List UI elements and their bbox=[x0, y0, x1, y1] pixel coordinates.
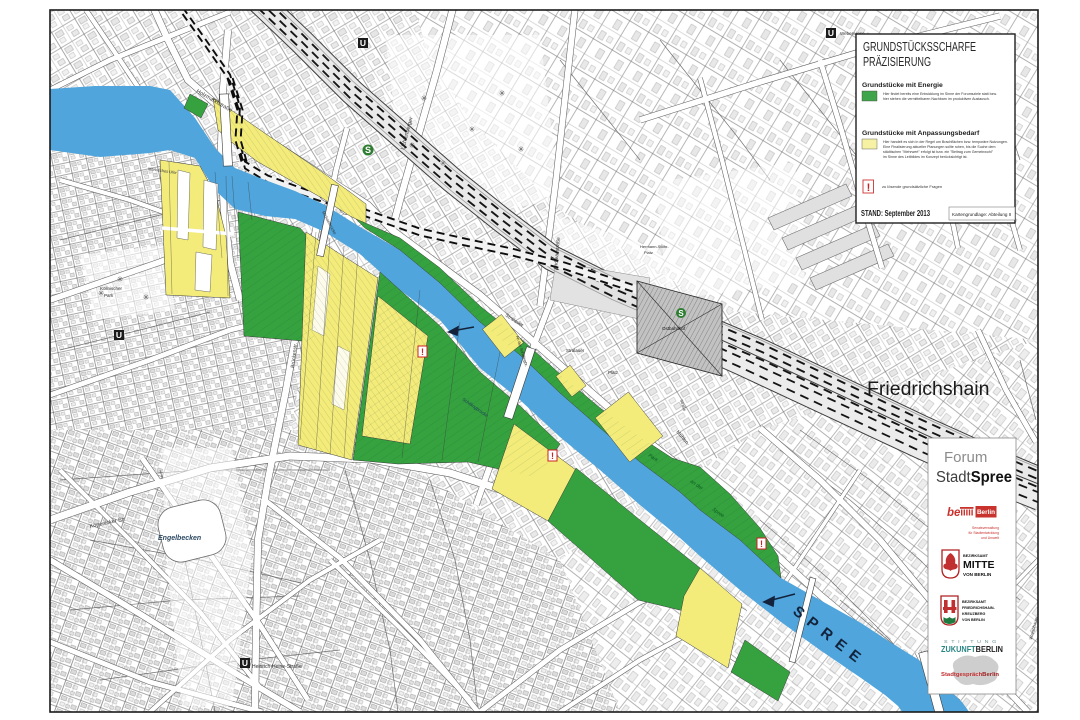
svg-text:Senatsverwaltung: Senatsverwaltung bbox=[972, 526, 999, 530]
svg-text:Platz: Platz bbox=[644, 250, 653, 255]
svg-text:StadtSpree: StadtSpree bbox=[936, 469, 1012, 486]
svg-text:ZUKUNFTBERLIN: ZUKUNFTBERLIN bbox=[941, 644, 1003, 654]
svg-text:✳: ✳ bbox=[440, 159, 447, 168]
svg-text:!: ! bbox=[867, 182, 871, 194]
svg-text:✳: ✳ bbox=[421, 94, 428, 103]
svg-text:Platz: Platz bbox=[608, 370, 619, 375]
svg-text:VON BERLIN: VON BERLIN bbox=[962, 618, 985, 622]
svg-text:Hier handelt es sich in der Re: Hier handelt es sich in der Regel um Bra… bbox=[883, 140, 1008, 144]
svg-text:Park: Park bbox=[104, 293, 114, 298]
svg-text:GRUNDSTÜCKSSCHARFE: GRUNDSTÜCKSSCHARFE bbox=[863, 40, 976, 54]
svg-text:STAND: September 2013: STAND: September 2013 bbox=[861, 209, 930, 218]
svg-text:PRÄZISIERUNG: PRÄZISIERUNG bbox=[863, 55, 931, 69]
svg-text:Grundstücke mit Anpassungsbeda: Grundstücke mit Anpassungsbedarf bbox=[862, 130, 980, 137]
svg-text:Friedrichshain: Friedrichshain bbox=[867, 378, 989, 400]
svg-text:✳: ✳ bbox=[469, 125, 476, 134]
svg-text:Ostbahnhof: Ostbahnhof bbox=[662, 326, 686, 331]
svg-text:Grundstücke mit Energie: Grundstücke mit Energie bbox=[862, 82, 943, 89]
svg-text:KREUZBERG: KREUZBERG bbox=[962, 612, 985, 616]
svg-text:hier stehen die vermittelbaren: hier stehen die vermittelbaren Nachbarn … bbox=[883, 97, 990, 101]
svg-text:!: ! bbox=[760, 539, 763, 549]
svg-text:BEZIRKSAMT: BEZIRKSAMT bbox=[963, 554, 989, 558]
svg-text:im Sinne des Leitbildes im Kon: im Sinne des Leitbildes im Konzept berüc… bbox=[883, 155, 968, 159]
svg-text:FRIEDRICHSHAIN-: FRIEDRICHSHAIN- bbox=[962, 606, 996, 610]
svg-text:✳: ✳ bbox=[518, 145, 525, 154]
svg-text:zu lösende grundsätzliche Frag: zu lösende grundsätzliche Fragen bbox=[882, 184, 942, 189]
svg-text:!: ! bbox=[551, 451, 554, 461]
svg-text:städtischen "Mehrwert" erfolgt: städtischen "Mehrwert" erfolgt ist bzw. … bbox=[883, 150, 994, 154]
svg-text:StadtgesprächBerlin: StadtgesprächBerlin bbox=[941, 672, 1000, 678]
svg-text:BEZIRKSAMT: BEZIRKSAMT bbox=[962, 600, 987, 604]
svg-text:be: be bbox=[947, 507, 961, 519]
svg-text:U: U bbox=[116, 330, 122, 340]
svg-text:Hier findet bereits eine Entwi: Hier findet bereits eine Entwicklung im … bbox=[883, 92, 997, 96]
svg-text:Berlin: Berlin bbox=[977, 509, 995, 516]
svg-text:U: U bbox=[828, 28, 834, 38]
svg-text:Engelbecken: Engelbecken bbox=[158, 535, 201, 542]
svg-text:✳: ✳ bbox=[409, 141, 416, 150]
svg-text:Eine Finalisierung aktueller P: Eine Finalisierung aktueller Planungen s… bbox=[883, 145, 995, 149]
svg-text:S: S bbox=[678, 309, 684, 318]
svg-text:Stralauer: Stralauer bbox=[566, 348, 585, 353]
svg-text:Köllnischer: Köllnischer bbox=[100, 286, 123, 291]
svg-text:VON BERLIN: VON BERLIN bbox=[963, 572, 992, 577]
svg-text:Forum: Forum bbox=[944, 449, 987, 466]
svg-text:✳: ✳ bbox=[117, 275, 124, 284]
svg-text:und Umwelt: und Umwelt bbox=[981, 536, 999, 540]
svg-text:Hermann-Stöhr-: Hermann-Stöhr- bbox=[640, 244, 669, 249]
svg-text:S: S bbox=[365, 145, 371, 155]
svg-text:Heinrich-Heine-Straße: Heinrich-Heine-Straße bbox=[252, 664, 302, 670]
svg-text:MITTE: MITTE bbox=[963, 559, 995, 571]
svg-text:!: ! bbox=[421, 347, 424, 357]
svg-text:für Stadtentwicklung: für Stadtentwicklung bbox=[968, 531, 999, 535]
svg-text:U: U bbox=[360, 38, 366, 48]
svg-text:✳: ✳ bbox=[499, 89, 506, 98]
svg-text:U: U bbox=[242, 658, 248, 668]
svg-text:Kartengrundlage: Abteilung II: Kartengrundlage: Abteilung II bbox=[952, 212, 1011, 217]
svg-text:✳: ✳ bbox=[143, 293, 150, 302]
